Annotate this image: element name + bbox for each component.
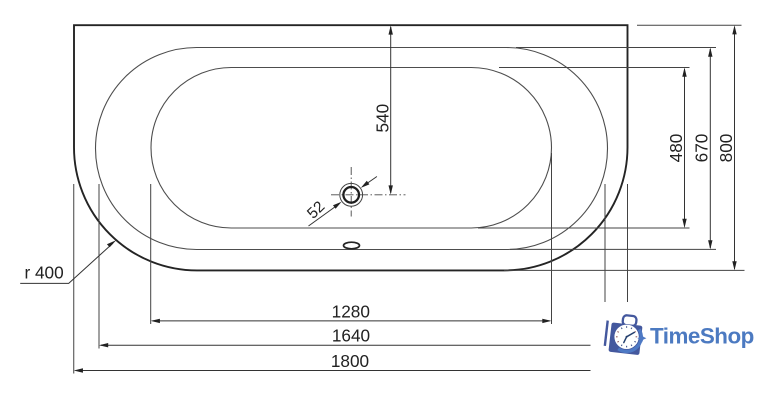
svg-text:540: 540	[373, 104, 393, 133]
svg-text:800: 800	[716, 134, 736, 163]
svg-text:1280: 1280	[332, 301, 370, 321]
svg-text:52: 52	[304, 198, 328, 222]
svg-text:TimeShop: TimeShop	[650, 324, 754, 349]
svg-text:1800: 1800	[331, 351, 369, 371]
svg-text:1640: 1640	[332, 326, 370, 346]
svg-text:480: 480	[666, 134, 686, 163]
svg-text:670: 670	[691, 134, 711, 163]
svg-text:r 400: r 400	[25, 263, 64, 283]
